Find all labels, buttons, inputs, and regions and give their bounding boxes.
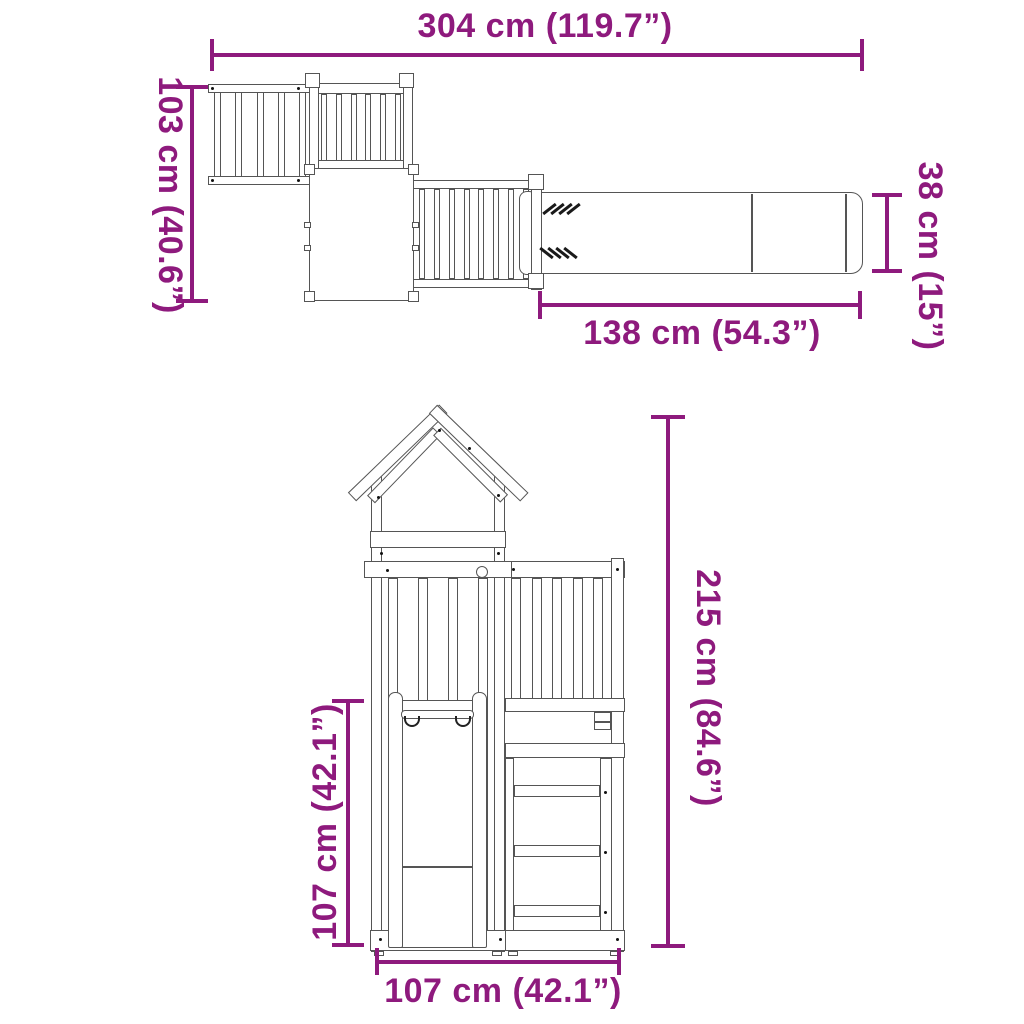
screw-dot bbox=[297, 179, 300, 182]
dim-label-base-width: 107 cm (42.1”) bbox=[253, 971, 753, 1011]
post bbox=[403, 76, 413, 170]
bracket bbox=[304, 222, 311, 228]
platform-base bbox=[505, 930, 625, 951]
corner-post bbox=[408, 291, 419, 302]
roof-beam-right-outer bbox=[429, 405, 529, 502]
post-cap bbox=[305, 73, 320, 88]
bracket bbox=[304, 245, 311, 251]
slat bbox=[419, 189, 425, 279]
dim-cap bbox=[872, 269, 902, 273]
slide-rail-left bbox=[388, 692, 403, 948]
dim-line bbox=[346, 701, 350, 947]
dim-line bbox=[666, 417, 670, 948]
slat bbox=[532, 578, 542, 700]
platform-deck bbox=[309, 168, 414, 301]
slide-end-seam bbox=[845, 194, 847, 272]
dim-cap bbox=[651, 944, 685, 948]
railing-slats bbox=[321, 94, 401, 162]
slat bbox=[508, 189, 514, 279]
foot bbox=[508, 951, 518, 956]
dim-cap bbox=[651, 415, 685, 419]
screw-dot bbox=[297, 87, 300, 90]
rail bbox=[413, 279, 534, 288]
screw-dot bbox=[616, 568, 619, 571]
dim-label-platform-height: 107 cm (42.1”) bbox=[305, 662, 345, 982]
ladder-rung bbox=[514, 905, 600, 917]
slide-rail-right bbox=[472, 692, 487, 948]
post-cap bbox=[528, 273, 544, 289]
roof-beam-left-outer bbox=[348, 404, 448, 501]
slat bbox=[511, 578, 521, 700]
dim-cap bbox=[210, 39, 214, 71]
dim-label-overall-height: 215 cm (84.6”) bbox=[688, 528, 728, 848]
slide-bed-seam bbox=[396, 866, 479, 868]
corner-post bbox=[408, 164, 419, 175]
ladder-rail-left bbox=[505, 758, 514, 950]
screw-dot bbox=[512, 568, 515, 571]
screw-dot bbox=[380, 552, 383, 555]
dim-label-overall-depth: 103 cm (40.6”) bbox=[150, 35, 190, 355]
screw-dot bbox=[604, 911, 607, 914]
corner-post bbox=[304, 291, 315, 302]
slat bbox=[351, 94, 357, 162]
dim-line bbox=[540, 303, 862, 307]
slat bbox=[278, 92, 285, 177]
slat bbox=[478, 189, 484, 279]
bracket-line bbox=[595, 721, 610, 723]
product-dimension-diagram: 304 cm (119.7”) 103 cm (40.6”) 38 cm (15… bbox=[0, 0, 1024, 1024]
ladder-rail-right bbox=[600, 758, 612, 950]
screw-dot bbox=[497, 494, 500, 497]
screw-dot bbox=[377, 496, 380, 499]
screw-dot bbox=[386, 569, 389, 572]
slide-body bbox=[537, 192, 863, 274]
slat bbox=[464, 189, 470, 279]
slat bbox=[552, 578, 562, 700]
slat bbox=[434, 189, 440, 279]
screw-dot bbox=[379, 938, 382, 941]
tower-beam bbox=[370, 531, 506, 548]
screw-dot bbox=[211, 87, 214, 90]
rail bbox=[318, 83, 404, 94]
platform-band bbox=[505, 698, 625, 712]
slat bbox=[257, 92, 264, 177]
ladder-rung bbox=[514, 785, 600, 797]
slide-bed bbox=[394, 700, 481, 948]
screw-dot bbox=[468, 447, 471, 450]
dim-line bbox=[190, 87, 194, 303]
platform-band bbox=[505, 743, 625, 758]
corner-post bbox=[304, 164, 315, 175]
ladder-rungs bbox=[214, 92, 306, 177]
dim-cap bbox=[860, 39, 864, 71]
screw-dot bbox=[616, 938, 619, 941]
bracket bbox=[412, 245, 419, 251]
slide-seam bbox=[751, 194, 753, 272]
dim-label-slide-width: 38 cm (15”) bbox=[910, 96, 950, 416]
platform-wall-slats bbox=[511, 578, 603, 700]
screw-dot bbox=[497, 552, 500, 555]
slat bbox=[395, 94, 401, 162]
slat bbox=[365, 94, 371, 162]
dim-line bbox=[212, 53, 864, 57]
slat bbox=[380, 94, 386, 162]
slat bbox=[321, 94, 327, 162]
screw-dot bbox=[604, 851, 607, 854]
ladder-rung bbox=[514, 845, 600, 857]
rail bbox=[413, 180, 534, 189]
platform-top-rail bbox=[505, 561, 625, 578]
post-cap bbox=[399, 73, 414, 88]
dim-line bbox=[377, 960, 621, 964]
slat bbox=[593, 578, 603, 700]
slat bbox=[214, 92, 221, 177]
dim-label-overall-width: 304 cm (119.7”) bbox=[295, 6, 795, 46]
bracket bbox=[412, 222, 419, 228]
slat bbox=[493, 189, 499, 279]
foot bbox=[492, 951, 502, 956]
dim-line bbox=[885, 195, 889, 273]
screw-dot bbox=[211, 179, 214, 182]
slat bbox=[336, 94, 342, 162]
dim-cap bbox=[872, 193, 902, 197]
lock-detail bbox=[476, 566, 488, 578]
post-cap bbox=[528, 174, 544, 190]
slat bbox=[235, 92, 242, 177]
slat bbox=[573, 578, 583, 700]
railing-slats bbox=[419, 189, 529, 279]
dim-label-slide-length: 138 cm (54.3”) bbox=[452, 313, 952, 353]
screw-dot bbox=[604, 791, 607, 794]
slat bbox=[449, 189, 455, 279]
screw-dot bbox=[438, 429, 441, 432]
screw-dot bbox=[499, 938, 502, 941]
